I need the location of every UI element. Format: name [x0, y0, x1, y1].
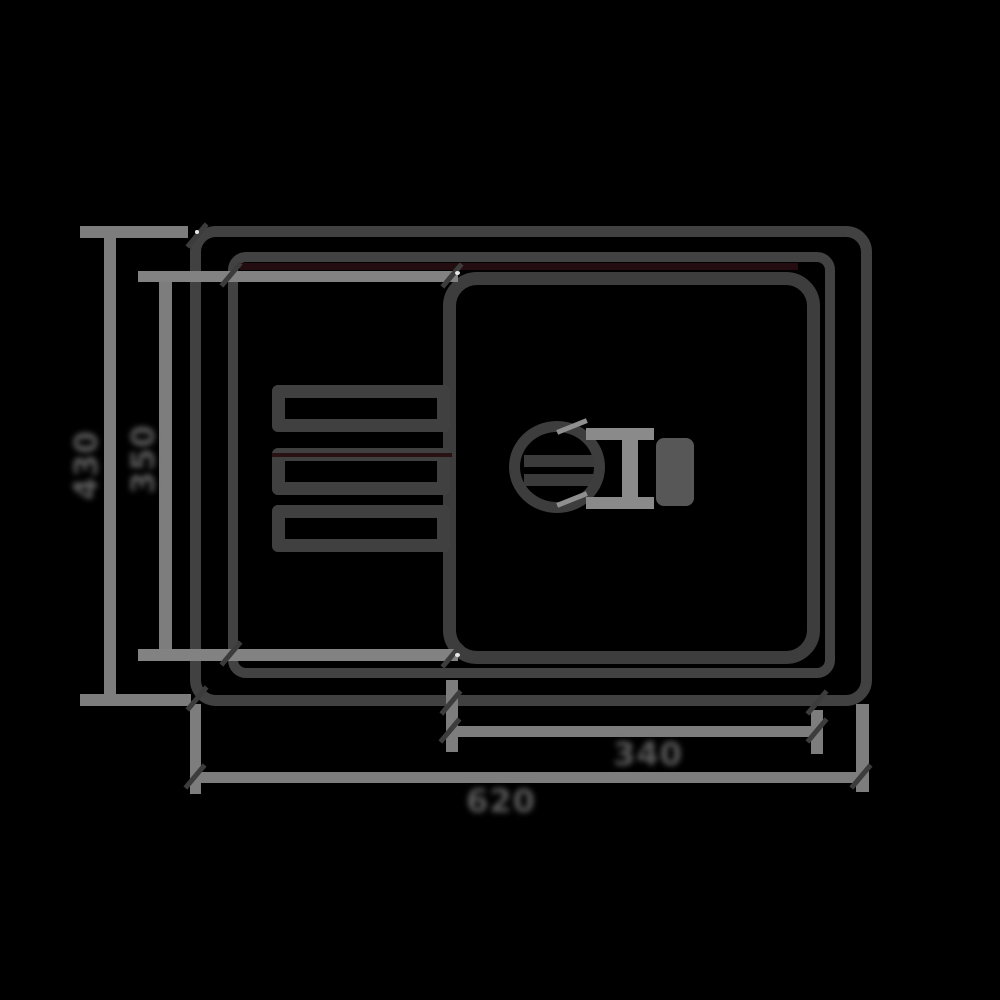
drainboard-slot-3: [272, 505, 450, 552]
dim-label-overall-width: 620: [463, 783, 539, 819]
artifact-speck: [455, 271, 460, 275]
dim-tick: [138, 271, 458, 282]
dim-label-bowl-width: 340: [606, 736, 690, 774]
drain-knob: [656, 438, 694, 506]
drain-fitting-stem: [622, 428, 638, 509]
dim-tick: [80, 226, 188, 238]
drainboard-slot-1: [272, 385, 450, 432]
artifact-speck: [455, 653, 460, 657]
drain-fitting-top-bar: [586, 428, 654, 440]
artifact-speck: [195, 230, 199, 234]
dim-tick: [138, 649, 458, 661]
drainboard-slot-accent-line: [272, 453, 452, 457]
inner-edge-accent-line: [240, 263, 798, 270]
dim-label-overall-depth: 430: [68, 423, 106, 507]
dim-label-bowl-depth: 350: [125, 421, 162, 497]
sink-technical-drawing: 430 350 340 620: [0, 0, 1000, 1000]
dim-tick: [80, 694, 191, 706]
drain-fitting-bottom-bar: [586, 497, 654, 509]
